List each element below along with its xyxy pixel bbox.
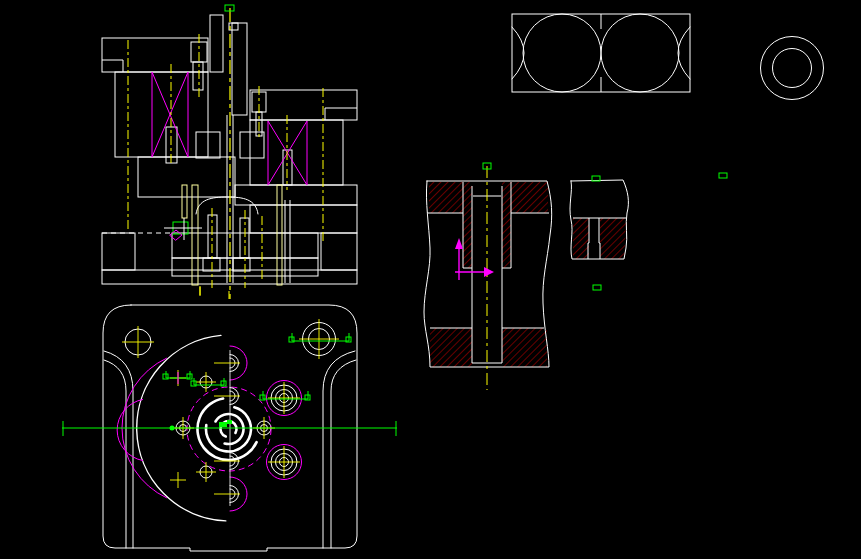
hatch-fill <box>502 328 547 367</box>
hatch-fill <box>511 182 548 213</box>
drawing-background <box>0 0 861 559</box>
model-space-viewport[interactable] <box>0 0 861 559</box>
hatch-fill <box>463 182 472 268</box>
hatch-fill <box>430 328 472 367</box>
hatch-fill <box>600 218 626 259</box>
selected-grip <box>227 420 232 424</box>
hatch-fill <box>502 182 511 268</box>
grip-dot <box>170 426 175 431</box>
cad-drawing-canvas[interactable] <box>0 0 861 559</box>
hatch-fill <box>573 218 589 259</box>
selected-grip <box>219 422 227 427</box>
hatch-fill <box>429 182 463 213</box>
